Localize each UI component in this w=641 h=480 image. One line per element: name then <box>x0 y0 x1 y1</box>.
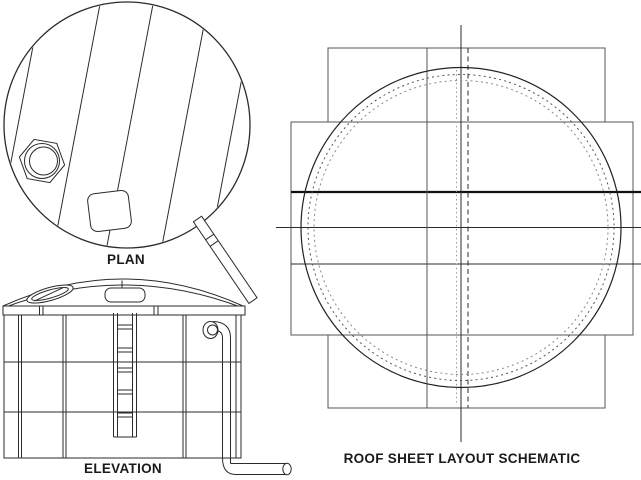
outlet-pipe-assembly <box>203 322 291 475</box>
pipe-end-cap <box>283 463 291 475</box>
elevation-label: ELEVATION <box>84 461 162 476</box>
plan-access-hatch <box>87 190 132 233</box>
sheet-top <box>328 48 605 122</box>
pipe-bottom-elbow <box>223 458 237 475</box>
plan-outlet-pipe <box>193 216 257 303</box>
roof-vent-louver <box>25 281 75 307</box>
plan-vent-fitting <box>19 139 64 182</box>
roof-sheet-schematic: ROOF SHEET LAYOUT SCHEMATIC <box>276 25 641 466</box>
plan-label: PLAN <box>107 252 145 267</box>
outlet-flange <box>203 322 218 339</box>
ladder-rungs <box>118 325 133 417</box>
sheet-middle-band <box>291 122 633 335</box>
drawing-canvas: PLAN <box>0 0 641 480</box>
roof-schematic-label: ROOF SHEET LAYOUT SCHEMATIC <box>344 451 581 466</box>
sheet-bottom <box>328 335 605 408</box>
roof-rim <box>3 306 245 315</box>
plan-view: PLAN <box>0 0 257 303</box>
ladder <box>114 313 137 437</box>
elevation-view: ELEVATION <box>3 279 291 476</box>
roof-hatch <box>105 288 145 302</box>
cad-drawing: PLAN <box>0 0 641 480</box>
